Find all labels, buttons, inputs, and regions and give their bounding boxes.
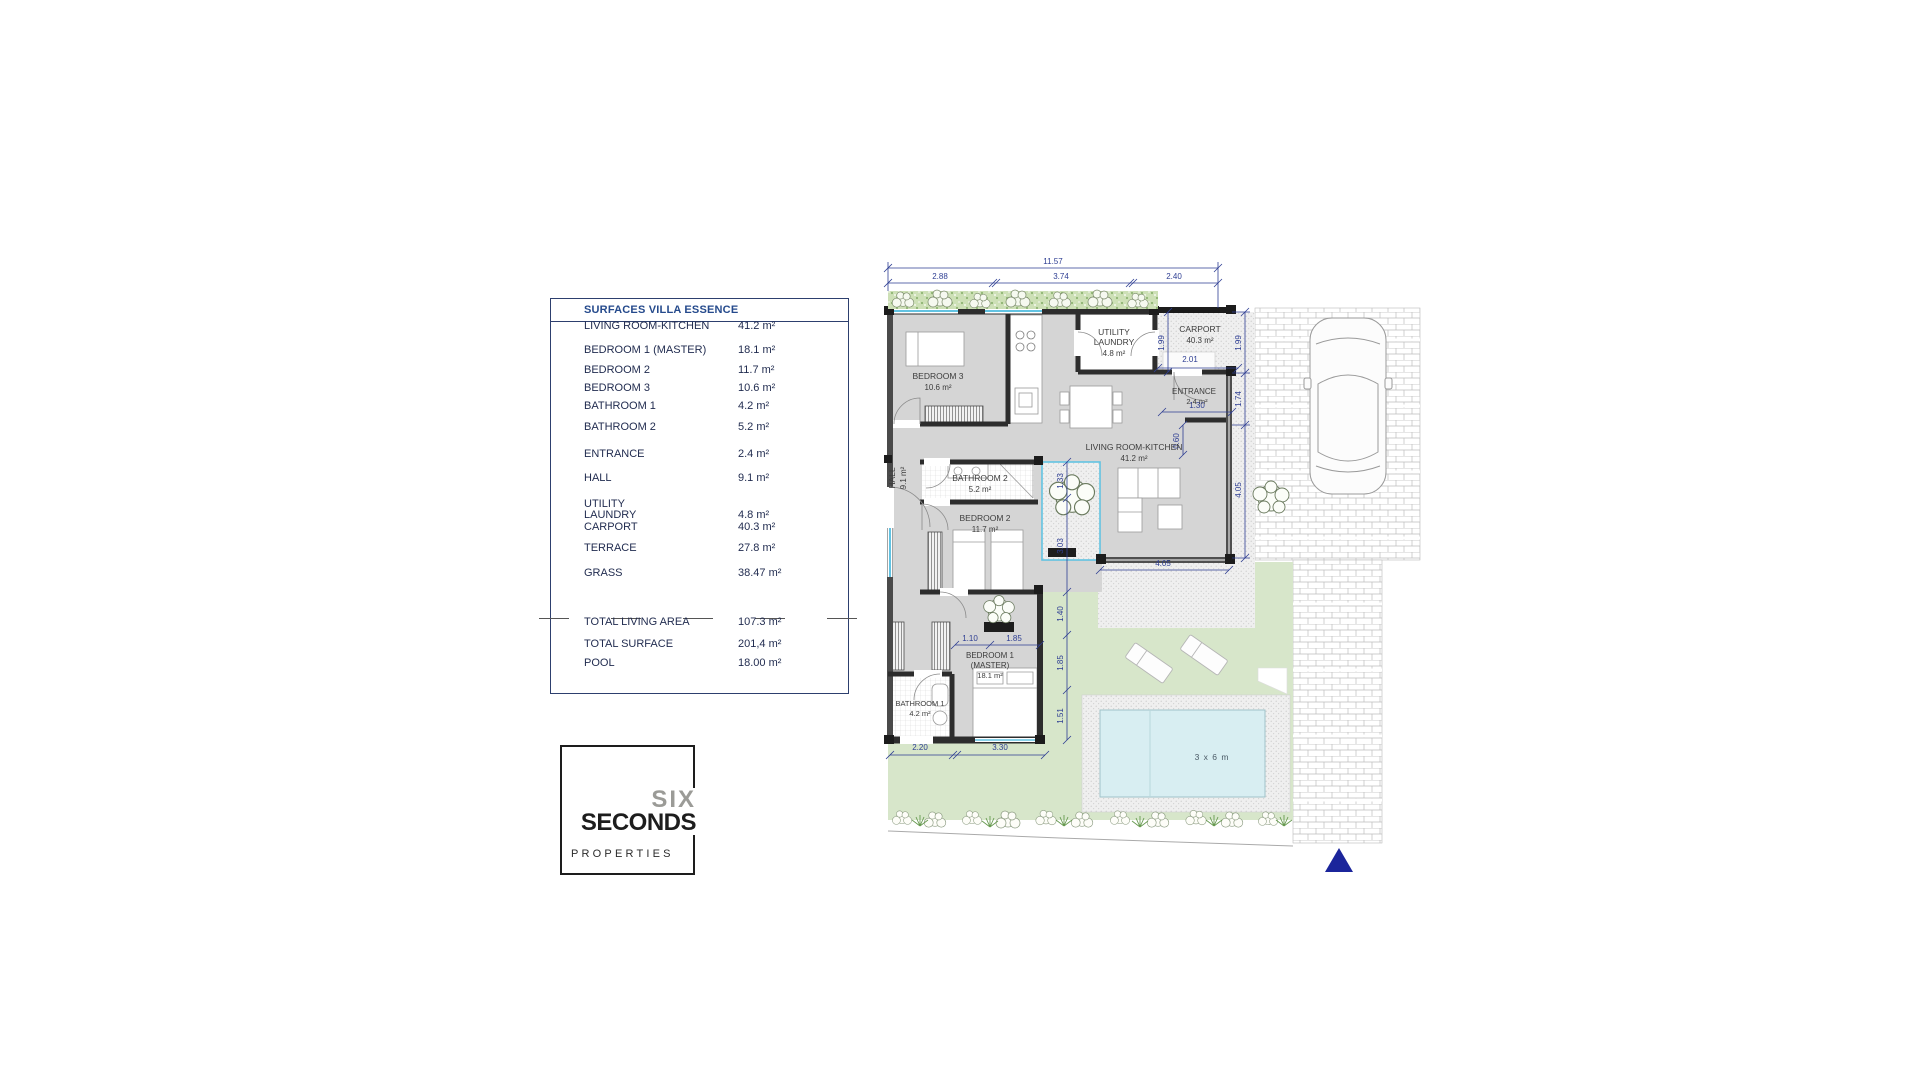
row-label: BATHROOM 1 — [584, 401, 656, 412]
entrance-area: 2.4 m² — [1186, 397, 1208, 406]
row-value: 18.00 m² — [738, 658, 781, 669]
row-value: 9.1 m² — [738, 473, 769, 484]
surfaces-table-title: SURFACES VILLA ESSENCE — [584, 304, 738, 316]
utility-label: UTILITY — [1098, 327, 1130, 337]
row-value: 41.2 m² — [738, 321, 775, 332]
row-value: 107.3 m² — [738, 617, 781, 628]
row-label: TOTAL SURFACE — [584, 639, 673, 650]
dim-side-1: 1.40 — [1056, 606, 1065, 622]
dim-right-1: 1.99 — [1234, 335, 1243, 351]
row-value: 11.7 m² — [738, 365, 774, 376]
row-label: BATHROOM 2 — [584, 422, 656, 433]
row-value: 2.4 m² — [738, 449, 769, 460]
bedroom3-area: 10.6 m² — [924, 383, 951, 392]
row-value: 38.47 m² — [738, 568, 781, 579]
row-label: UTILITY LAUNDRY — [584, 499, 636, 521]
bedroom1-label: BEDROOM 1 — [966, 651, 1015, 660]
row-label: TERRACE — [584, 543, 637, 554]
row-label: BEDROOM 3 — [584, 383, 650, 394]
terrace-surface — [1098, 562, 1255, 628]
dim-top-3: 2.40 — [1166, 272, 1182, 281]
dim-side-3: 1.51 — [1056, 708, 1065, 724]
page: SURFACES VILLA ESSENCE LIVING ROOM-KITCH… — [0, 0, 1920, 1080]
living-label: LIVING ROOM-KITCHEN — [1086, 442, 1183, 452]
row-label: BEDROOM 2 — [584, 365, 650, 376]
dim-bed1-2: 1.85 — [1006, 634, 1022, 643]
dim-right-3: 4.05 — [1234, 482, 1243, 498]
row-value: 4.8 m² — [738, 510, 769, 521]
bedroom2-label: BEDROOM 2 — [959, 513, 1010, 523]
row-label: GRASS — [584, 568, 623, 579]
utility-label-2: LAUNDRY — [1094, 337, 1135, 347]
bedroom2-area: 11.7 m² — [972, 525, 999, 534]
dim-bed1-1: 1.10 — [962, 634, 978, 643]
hedge — [888, 290, 1158, 309]
bedroom1-area: 18.1 m² — [977, 671, 1003, 680]
floor-plan: 3 x 6 m — [870, 240, 1430, 890]
bathroom1-label: BATHROOM 1 — [895, 699, 944, 708]
row-label: CARPORT — [584, 522, 638, 533]
row-value: 5.2 m² — [738, 422, 769, 433]
living-area: 41.2 m² — [1120, 454, 1147, 463]
bathroom1-area: 4.2 m² — [909, 709, 931, 718]
utility-area: 4.8 m² — [1103, 349, 1126, 358]
dim-court-2: 3.03 — [1056, 538, 1065, 554]
bathroom2-area: 5.2 m² — [969, 485, 992, 494]
dim-bottom-1: 2.20 — [912, 743, 928, 752]
dim-top-1: 2.88 — [932, 272, 948, 281]
dim-bottom-2: 3.30 — [992, 743, 1008, 752]
six-seconds-logo: SIX SECONDS PROPERTIES — [560, 745, 695, 875]
logo-word-properties: PROPERTIES — [571, 849, 674, 860]
dim-side-2: 1.85 — [1056, 655, 1065, 671]
row-label: ENTRANCE — [584, 449, 645, 460]
dim-overall: 11.57 — [1043, 257, 1063, 266]
bedroom1-label-2: (MASTER) — [971, 661, 1010, 670]
dim-court-1: 1.33 — [1056, 473, 1065, 489]
row-label: BEDROOM 1 (MASTER) — [584, 345, 706, 356]
bathroom2-label: BATHROOM 2 — [952, 473, 1008, 483]
row-value: 4.2 m² — [738, 401, 769, 412]
bedroom3-label: BEDROOM 3 — [912, 371, 963, 381]
dim-right-2: 1.74 — [1234, 391, 1243, 407]
north-arrow — [1325, 848, 1353, 872]
dim-terrace: 4.05 — [1155, 559, 1171, 568]
logo-word-seconds: SECONDS — [576, 811, 696, 835]
hall-area: 9.1 m² — [899, 466, 908, 489]
row-label: POOL — [584, 658, 615, 669]
row-value: 18.1 m² — [738, 345, 775, 356]
carport-label: CARPORT — [1179, 324, 1220, 334]
entrance-label: ENTRANCE — [1172, 387, 1216, 396]
car — [1304, 318, 1392, 494]
surfaces-table: SURFACES VILLA ESSENCE LIVING ROOM-KITCH… — [550, 298, 849, 694]
hall-label: HALL — [887, 467, 897, 489]
row-label: LIVING ROOM-KITCHEN — [584, 321, 709, 332]
row-value: 10.6 m² — [738, 383, 775, 394]
row-label: TOTAL LIVING AREA — [584, 617, 690, 628]
courtyard — [1042, 462, 1100, 560]
pool-size-label: 3 x 6 m — [1195, 752, 1230, 762]
table-row: UTILITY LAUNDRY4.8 m² — [551, 499, 848, 521]
row-value: 40.3 m² — [738, 522, 775, 533]
row-value: 201,4 m² — [738, 639, 781, 650]
row-label: HALL — [584, 473, 612, 484]
surfaces-table-header: SURFACES VILLA ESSENCE — [551, 299, 848, 322]
carport-area: 40.3 m² — [1186, 336, 1213, 345]
dim-carport-h: 1.99 — [1157, 335, 1166, 351]
row-value: 27.8 m² — [738, 543, 775, 554]
dim-top-2: 3.74 — [1053, 272, 1069, 281]
pool: 3 x 6 m — [1100, 710, 1265, 797]
dim-carport-w: 2.01 — [1182, 355, 1198, 364]
